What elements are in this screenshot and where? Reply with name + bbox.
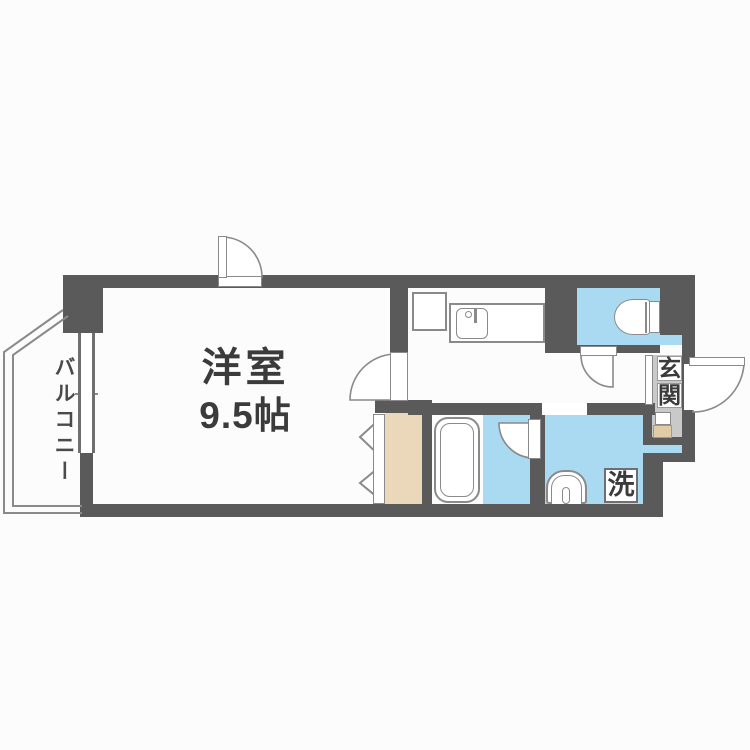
balcony-label: バルコニー xyxy=(48,356,78,496)
washroom-entry-opening xyxy=(542,403,587,415)
kitchen-sink-icon xyxy=(456,308,488,339)
entrance-label-char-2: 関 xyxy=(657,383,682,408)
entrance-door-leaf xyxy=(689,357,745,366)
faucet-icon xyxy=(465,311,472,318)
floor-plan: 洗 洋室 9.5帖 バルコニー 玄 関 xyxy=(0,0,750,750)
entrance-step-white xyxy=(655,412,671,425)
top-door-leaf xyxy=(218,236,227,278)
refrigerator-space xyxy=(412,292,447,331)
entrance-door-opening xyxy=(684,364,695,410)
room-door-leaf xyxy=(390,352,408,401)
entrance-door-swing xyxy=(693,363,744,412)
bathroom-door-leaf xyxy=(528,419,541,459)
main-room-size: 9.5帖 xyxy=(103,397,388,434)
entrance-label-char-1: 玄 xyxy=(657,356,682,381)
entrance-step-beige xyxy=(653,425,672,438)
main-room-label: 洋室 xyxy=(103,348,388,388)
washbasin-drain-icon xyxy=(562,487,570,504)
entrance-step-strip xyxy=(645,355,653,405)
bathtub-inner xyxy=(440,423,474,497)
toilet-door-swing xyxy=(581,355,613,387)
balcony-name: バルコニー xyxy=(52,356,75,486)
top-door-swing xyxy=(222,237,262,277)
entrance-char-2: 関 xyxy=(658,384,681,407)
toilet-door-leaf xyxy=(580,346,617,356)
balcony-window xyxy=(78,333,95,453)
toilet-seat-line xyxy=(645,302,647,333)
washing-machine-space: 洗 xyxy=(604,468,638,503)
washing-machine-label: 洗 xyxy=(608,472,635,499)
main-room-name: 洋室 xyxy=(202,346,290,390)
entrance-char-1: 玄 xyxy=(658,357,681,380)
toilet-tank-icon xyxy=(649,301,660,333)
faucet-handle-icon xyxy=(474,308,477,323)
main-room-size-value: 9.5帖 xyxy=(199,395,291,436)
